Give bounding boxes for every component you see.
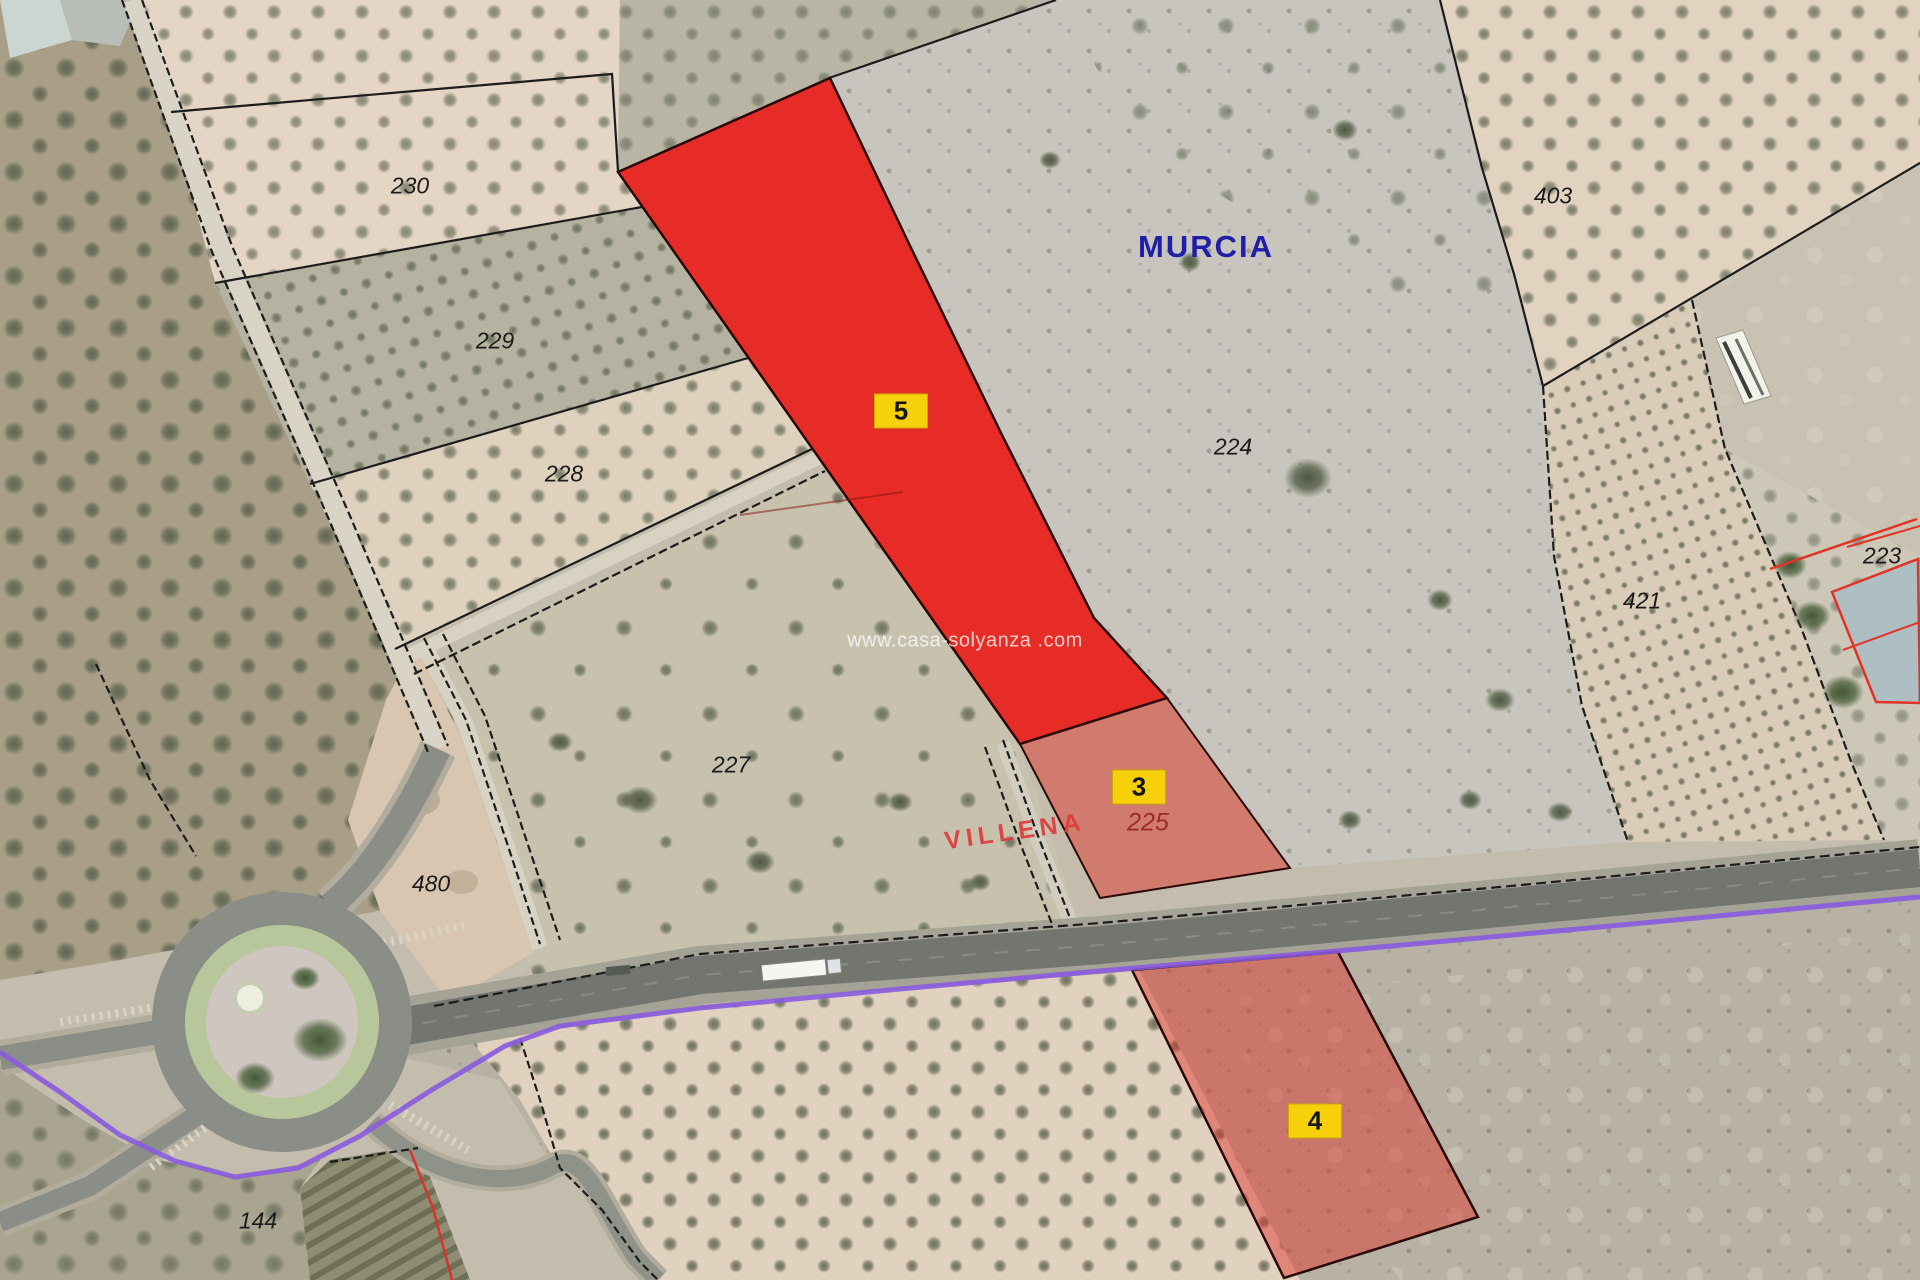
aerial-map-canvas — [0, 0, 1920, 1280]
cadastral-aerial-map: 230 229 228 227 480 144 224 403 421 223 … — [0, 0, 1920, 1280]
roundabout-fountain — [235, 983, 265, 1013]
plot-badge-4: 4 — [1288, 1104, 1342, 1139]
plot-badge-3: 3 — [1112, 770, 1166, 805]
roundabout — [152, 892, 412, 1152]
plot-badge-5: 5 — [874, 394, 928, 429]
